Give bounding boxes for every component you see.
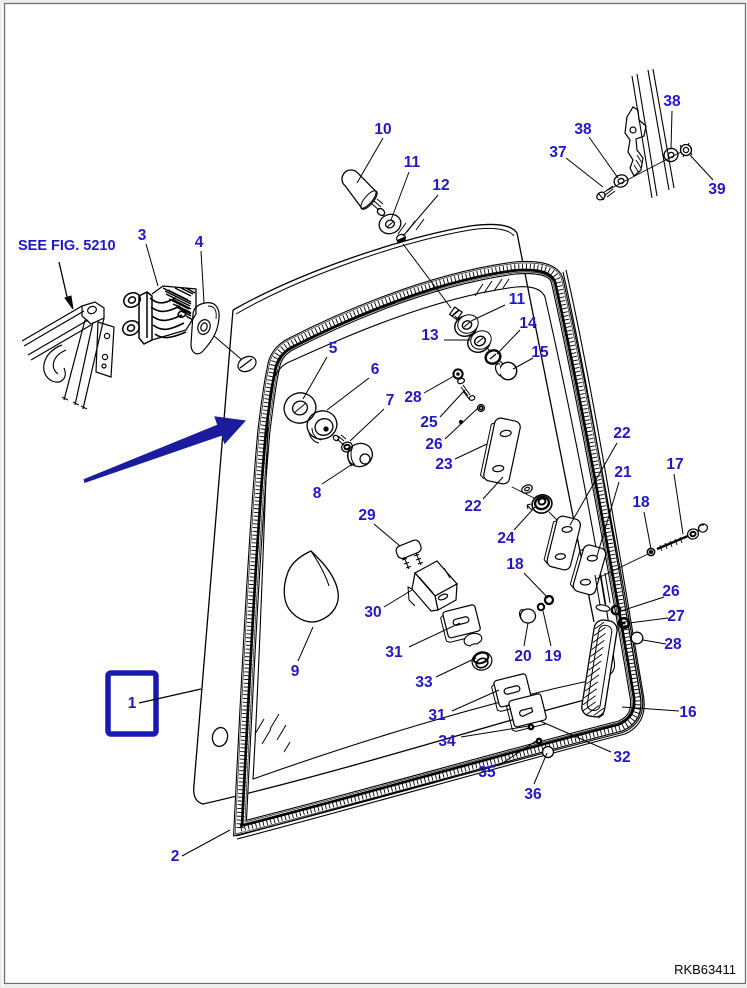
svg-text:33: 33 <box>415 674 433 691</box>
svg-text:6: 6 <box>371 361 380 378</box>
svg-text:38: 38 <box>663 93 681 110</box>
svg-text:16: 16 <box>679 704 697 721</box>
svg-text:30: 30 <box>364 604 381 621</box>
svg-text:21: 21 <box>614 464 632 481</box>
svg-text:7: 7 <box>386 392 395 409</box>
svg-text:31: 31 <box>385 644 403 661</box>
svg-text:10: 10 <box>374 121 391 138</box>
svg-text:5: 5 <box>329 340 338 357</box>
svg-text:RKB63411: RKB63411 <box>674 962 736 977</box>
svg-text:17: 17 <box>666 456 683 473</box>
svg-text:1: 1 <box>128 695 137 712</box>
svg-text:12: 12 <box>432 177 449 194</box>
svg-text:2: 2 <box>171 848 180 865</box>
svg-text:18: 18 <box>506 556 524 573</box>
svg-text:32: 32 <box>613 749 630 766</box>
svg-text:31: 31 <box>428 707 446 724</box>
svg-text:38: 38 <box>574 121 592 138</box>
svg-text:20: 20 <box>514 648 531 665</box>
svg-text:18: 18 <box>632 494 650 511</box>
svg-text:36: 36 <box>524 786 542 803</box>
svg-text:4: 4 <box>195 234 204 251</box>
svg-text:29: 29 <box>358 507 376 524</box>
svg-text:SEE FIG. 5210: SEE FIG. 5210 <box>18 238 116 254</box>
svg-text:27: 27 <box>667 608 684 625</box>
svg-text:26: 26 <box>425 436 443 453</box>
svg-text:22: 22 <box>464 498 481 515</box>
svg-text:13: 13 <box>421 327 439 344</box>
svg-text:35: 35 <box>478 764 496 781</box>
svg-text:9: 9 <box>291 663 300 680</box>
svg-text:34: 34 <box>438 733 456 750</box>
svg-text:28: 28 <box>404 389 422 406</box>
svg-text:22: 22 <box>613 425 630 442</box>
svg-text:3: 3 <box>138 227 147 244</box>
svg-text:39: 39 <box>708 181 726 198</box>
svg-text:15: 15 <box>531 344 549 361</box>
svg-text:8: 8 <box>313 485 322 502</box>
svg-text:28: 28 <box>664 636 682 653</box>
svg-text:24: 24 <box>497 530 515 547</box>
svg-text:11: 11 <box>404 154 421 171</box>
svg-text:19: 19 <box>544 648 562 665</box>
svg-text:37: 37 <box>549 144 566 161</box>
svg-text:11: 11 <box>509 291 526 308</box>
svg-text:14: 14 <box>519 315 537 332</box>
svg-text:26: 26 <box>662 583 680 600</box>
svg-text:25: 25 <box>420 414 438 431</box>
svg-text:23: 23 <box>435 456 453 473</box>
